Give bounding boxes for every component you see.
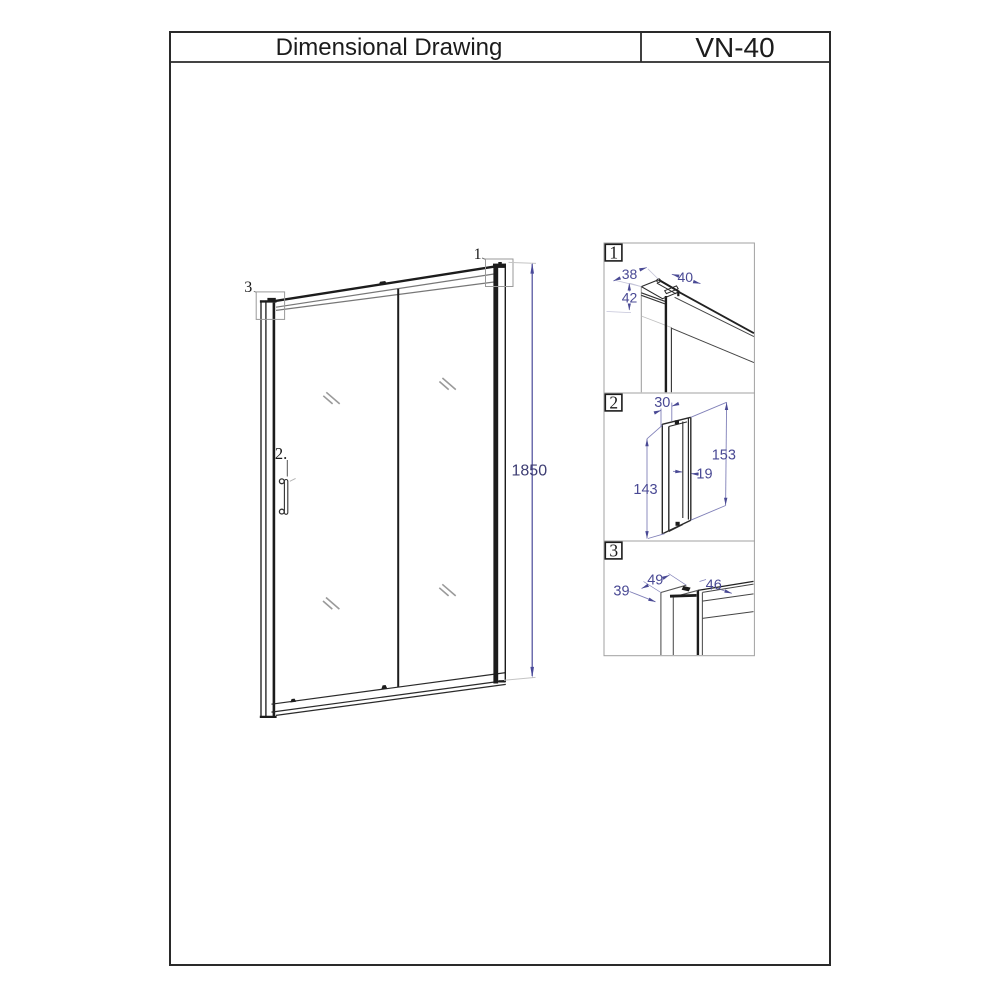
svg-text:VN-40: VN-40 [695,32,774,63]
svg-text:40: 40 [678,269,694,285]
svg-text:Dimensional Drawing: Dimensional Drawing [276,34,503,61]
svg-text:39: 39 [613,584,629,600]
svg-text:38: 38 [622,266,638,282]
svg-text:153: 153 [712,448,736,464]
svg-text:42: 42 [622,290,638,306]
svg-text:143: 143 [633,482,657,498]
svg-text:3: 3 [244,279,252,296]
svg-text:49: 49 [647,573,663,589]
svg-text:1: 1 [609,243,618,263]
svg-text:1: 1 [474,246,482,263]
svg-text:2.: 2. [275,444,287,463]
svg-text:1850: 1850 [512,463,548,480]
svg-text:46: 46 [706,578,722,594]
svg-text:3: 3 [609,541,618,561]
svg-text:19: 19 [696,467,712,483]
svg-text:2: 2 [609,393,618,413]
svg-text:30: 30 [654,395,670,411]
